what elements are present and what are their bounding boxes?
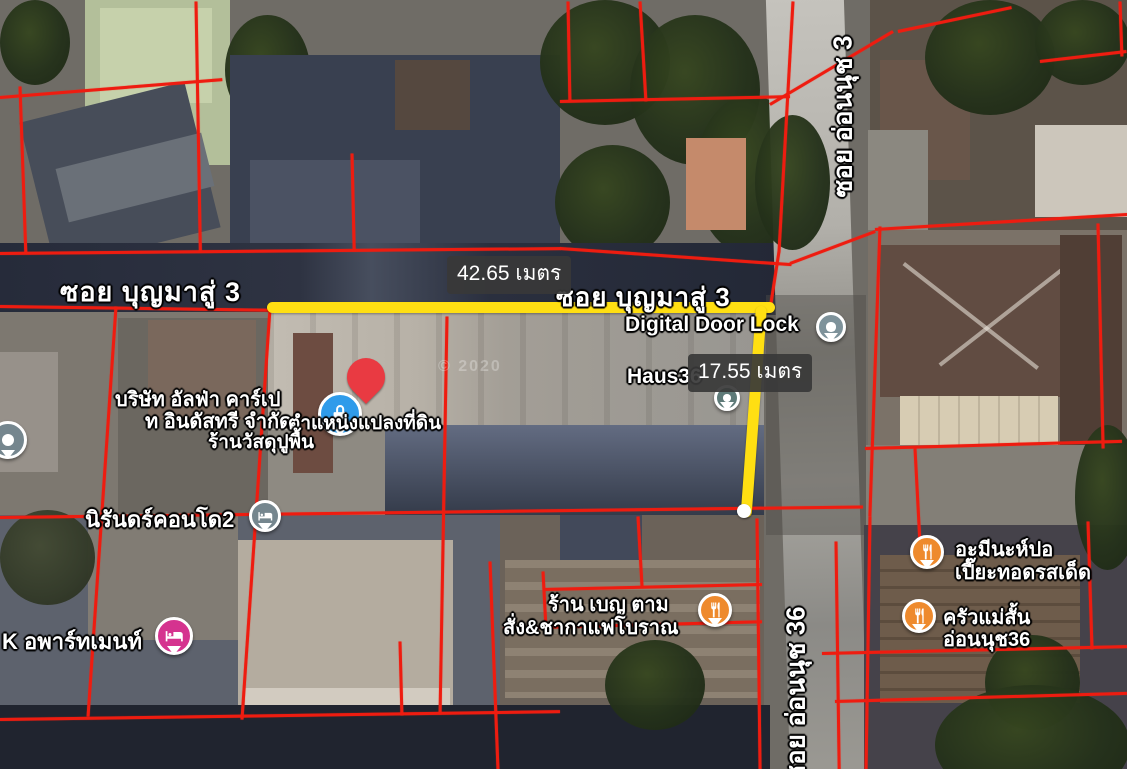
street-label-onnut-bottom: ซอย อ่อนนุช 36 — [776, 565, 817, 769]
fork-knife-icon — [918, 543, 936, 561]
place-label-digital-door-lock[interactable]: Digital Door Lock — [625, 313, 799, 337]
satellite-map-canvas[interactable]: ซอย บุญมาสู่ 3 ซอย บุญมาสู่ 3 ซอย อ่อนนุ… — [0, 0, 1127, 769]
place-dot-icon — [826, 322, 835, 331]
place-label-apartment[interactable]: K อพาร์ทเมนท์ — [2, 624, 142, 659]
place-label-kitchen-line2[interactable]: อ่อนนุช36 — [943, 623, 1030, 655]
measurement-badge-depth: 17.55 เมตร — [688, 354, 812, 392]
measure-endpoint-dot[interactable] — [737, 504, 751, 518]
aminah-restaurant-pin[interactable] — [910, 535, 944, 569]
tree-canopy — [1035, 0, 1127, 85]
bed-icon — [164, 626, 184, 646]
building-roof — [686, 138, 746, 230]
building-roof — [1035, 125, 1127, 217]
kitchen-restaurant-pin[interactable] — [902, 599, 936, 633]
fork-knife-icon — [706, 601, 724, 619]
apartment-pin[interactable] — [155, 617, 193, 655]
benj-restaurant-pin[interactable] — [698, 593, 732, 627]
place-dot-icon — [2, 434, 14, 446]
roof-block — [868, 130, 928, 230]
tree-canopy — [755, 115, 830, 250]
roof-block — [250, 160, 420, 250]
measurement-badge-width: 42.65 เมตร — [447, 256, 571, 294]
place-label-condo[interactable]: นิรันดร์คอนโด2 — [85, 502, 234, 537]
place-label-benj-line2[interactable]: สั่ง&ชากาแฟโบราณ — [503, 611, 679, 643]
place-dot-icon — [723, 394, 731, 402]
roof-block — [395, 60, 470, 130]
place-label-aminah-line2[interactable]: เปี๊ยะทอดรสเด็ด — [955, 556, 1091, 588]
tree-canopy — [0, 510, 95, 605]
street-label-boonmasu-right: ซอย บุญมาสู่ 3 — [556, 277, 731, 318]
condo-pin[interactable] — [249, 500, 281, 532]
place-label-flooring-shop[interactable]: ร้านวัสดุปูพื้น — [208, 427, 314, 457]
building-roof — [238, 540, 453, 712]
tree-canopy — [605, 640, 705, 730]
imagery-watermark: © 2020 — [438, 358, 502, 376]
bed-icon — [257, 508, 274, 525]
street-label-onnut-top: ซอย อ่อนนุช 3 — [823, 0, 864, 237]
fork-knife-icon — [910, 607, 928, 625]
parcel-boundary-line — [19, 86, 28, 253]
roof-block — [560, 515, 642, 560]
digital-door-lock-pin[interactable] — [816, 312, 846, 342]
tree-canopy — [925, 0, 1055, 115]
tree-canopy — [0, 0, 70, 85]
street-label-boonmasu-left: ซอย บุญมาสู่ 3 — [60, 270, 241, 313]
